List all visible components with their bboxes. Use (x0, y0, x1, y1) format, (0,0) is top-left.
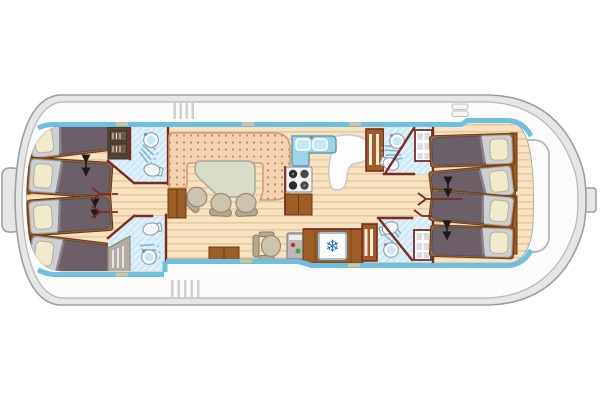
stern-bathroom-bottom (362, 217, 433, 262)
bed (429, 225, 514, 259)
throttle-red (291, 243, 295, 247)
galley-cabinet (285, 194, 312, 215)
fridge: ❄ (319, 233, 346, 259)
boat-floor-plan: ❄ (0, 0, 600, 400)
washbasin (142, 250, 157, 265)
wardrobe (362, 224, 377, 261)
floor-plan-canvas: ❄ (0, 0, 600, 400)
bed (27, 157, 113, 199)
bath-shelf (414, 230, 431, 260)
stove (286, 167, 312, 192)
stern-bathroom-top (366, 126, 433, 175)
bed (429, 133, 514, 167)
sink-bowl (296, 139, 310, 150)
control-console (287, 233, 304, 259)
floor-cabinet (209, 247, 239, 261)
washbasin (144, 133, 159, 148)
side-cabinet (168, 189, 186, 218)
bed (27, 194, 113, 236)
helm: ❄ (253, 229, 363, 263)
faucet (310, 136, 314, 140)
washbasin (384, 243, 399, 258)
snowflake-icon: ❄ (325, 237, 339, 257)
throttle-green (295, 248, 300, 253)
sink-bowl (313, 139, 327, 150)
